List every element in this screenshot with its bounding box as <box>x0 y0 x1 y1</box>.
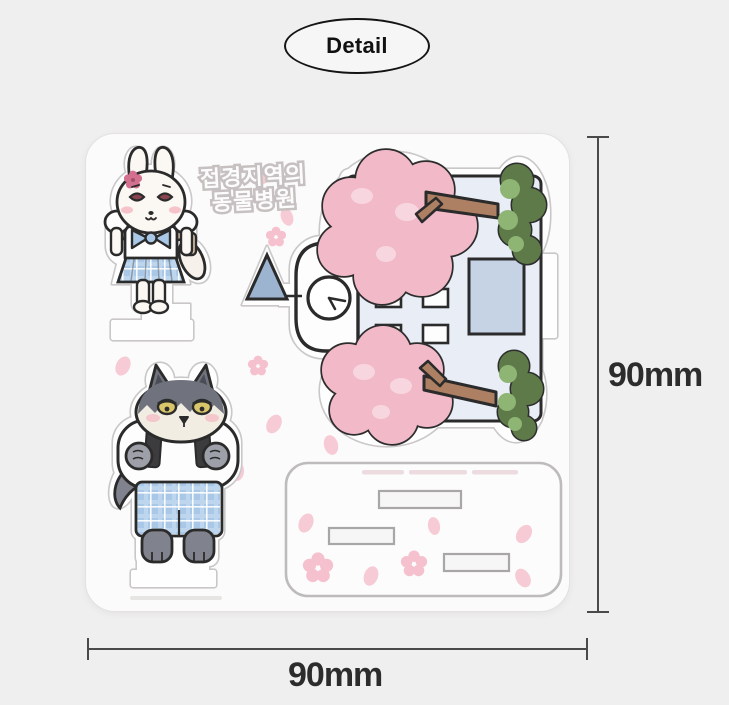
building-door <box>469 259 524 334</box>
wolf-student-standee <box>104 363 241 587</box>
detail-badge: Detail <box>284 18 430 74</box>
base-fine-print <box>362 470 518 475</box>
width-dimension-tick-left <box>87 638 89 660</box>
detail-badge-label: Detail <box>326 33 388 59</box>
product-detail-image: Detail <box>0 0 729 705</box>
acrylic-sheet: 접경지역의 동물병원 <box>85 133 570 612</box>
width-dimension-tick-right <box>586 638 588 660</box>
height-dimension-label: 90mm <box>608 356 702 395</box>
base-stand-piece <box>286 463 561 596</box>
width-dimension-label: 90mm <box>288 656 382 695</box>
product-title-line2: 동물병원 <box>211 186 297 215</box>
height-dimension-tick-top <box>587 136 609 138</box>
height-dimension-line <box>597 137 599 613</box>
width-dimension-line <box>88 648 587 650</box>
acrylic-kit-artwork: 접경지역의 동물병원 <box>86 134 569 611</box>
product-title: 접경지역의 동물병원 <box>199 161 308 215</box>
height-dimension-tick-bottom <box>587 611 609 613</box>
sheet-fine-print <box>130 596 222 600</box>
